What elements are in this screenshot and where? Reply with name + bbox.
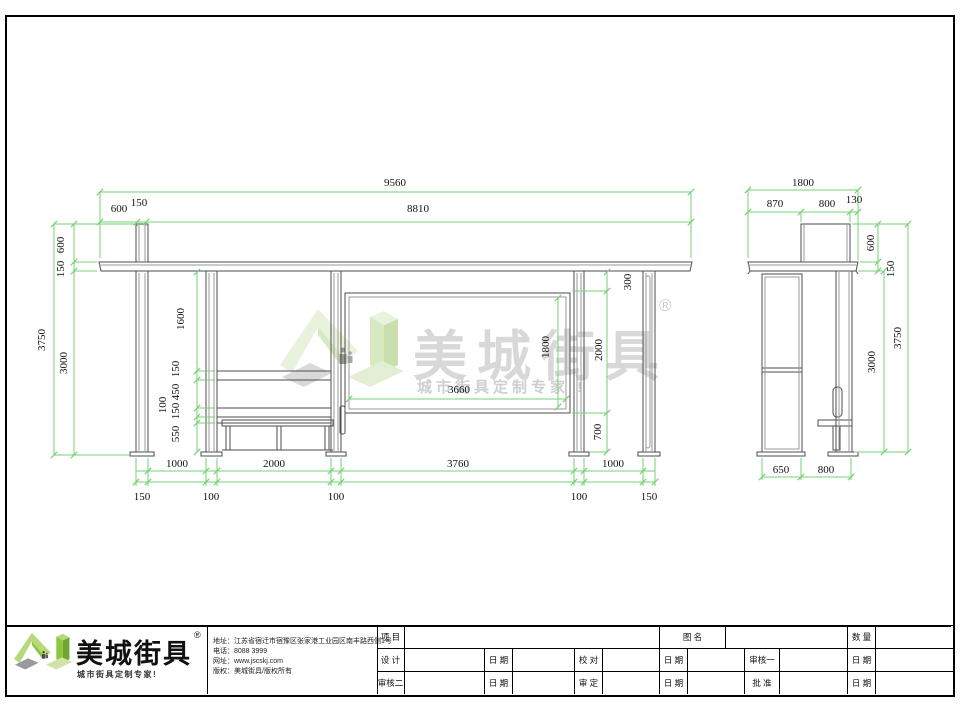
dim-label: 1800 [792,177,814,189]
titleblock-proof-label: 校 对 [575,649,603,671]
date-value [876,649,953,671]
dim-label: 600 [55,237,67,254]
company-copyright: 版权：美城街具/版权所有 [213,667,392,677]
company-info: 地址：江苏省宿迁市宿豫区张家港工业园区南丰路西侧1号 电话：8088 3999 … [213,637,392,677]
date-value [513,649,575,671]
dim-label: 1000 [602,458,624,470]
dim-label: 600 [865,235,877,252]
dim-label: 3750 [892,327,904,349]
dim-label: 150 [134,491,151,503]
titleblock-table: 项 目 图 名 数 量 设 计 日 期 校 对 日 期 审核一 日 期 审核二 … [377,625,953,694]
date-value [688,649,745,671]
date-value [876,672,953,694]
project-value [405,626,660,648]
table-row: 审核二 日 期 审 定 日 期 批 准 日 期 [377,672,953,694]
watermark-tagline: 城市街具定制专家 ! [417,376,586,397]
table-row: 设 计 日 期 校 对 日 期 审核一 日 期 [377,649,953,672]
company-address: 地址：江苏省宿迁市宿豫区张家港工业园区南丰路西侧1号 [213,637,392,647]
footer-logo-icon [14,633,72,670]
review1-value [780,649,848,671]
titleblock-review1-label: 审核一 [745,649,780,671]
dim-label: 150 [885,261,897,278]
watermark-logo-icon [280,309,404,387]
dim-label: 9560 [384,177,406,189]
review2-value [405,672,485,694]
dim-label: 600 [111,203,128,215]
titleblock-date-label: 日 期 [848,672,876,694]
dim-label: 450 [170,384,182,401]
titleblock-approve-label: 审 定 [575,672,603,694]
titleblock-date-label: 日 期 [660,672,688,694]
ratify-value [780,672,848,694]
dim-label: 100 [157,397,169,414]
titleblock-date-label: 日 期 [485,672,513,694]
drawing-name-value [726,626,848,648]
titleblock-date-label: 日 期 [660,649,688,671]
date-value [513,672,575,694]
dim-label: 3760 [447,458,469,470]
dim-label: 150 [131,197,148,209]
footer-brand-text: 美城街具 [76,632,192,671]
proof-value [603,649,660,671]
titleblock-review2-label: 审核二 [377,672,405,694]
dim-label: 300 [622,274,634,291]
dim-label: 3660 [448,384,470,396]
footer-tagline: 城市街具定制专家! [77,669,157,680]
company-phone: 电话：8088 3999 [213,647,392,657]
dim-label: 1600 [175,308,187,330]
dim-label: 8810 [407,203,429,215]
dim-label: 150 [170,403,182,420]
dim-label: 3000 [58,352,70,374]
titleblock-drawing-name-label: 图 名 [660,626,726,648]
quantity-value [876,626,953,648]
dim-label: 3750 [36,329,48,351]
titleblock-ratify-label: 批 准 [745,672,780,694]
dim-label: 2000 [263,458,285,470]
dim-label: 100 [203,491,220,503]
dim-label: 2000 [593,339,605,361]
dim-label: 800 [818,464,835,476]
dim-label: 100 [571,491,588,503]
footer-registered-icon: ® [194,630,201,640]
dim-label: 800 [819,198,836,210]
dim-label: 3000 [866,351,878,373]
dim-label: 1000 [166,458,188,470]
date-value [688,672,745,694]
titleblock-design-label: 设 计 [377,649,405,671]
table-row: 项 目 图 名 数 量 [377,626,953,649]
dim-label: 130 [846,194,863,206]
dim-label: 550 [170,426,182,443]
dim-label: 1800 [540,336,552,358]
dim-label: 100 [328,491,345,503]
titleblock-project-label: 项 目 [377,626,405,648]
titleblock-divider [207,625,208,694]
dim-label: 150 [641,491,658,503]
titleblock-date-label: 日 期 [485,649,513,671]
titleblock-date-label: 日 期 [848,649,876,671]
approve-value [603,672,660,694]
design-value [405,649,485,671]
dim-label: 150 [170,361,182,378]
dim-label: 650 [773,464,790,476]
watermark-registered-icon: ® [659,296,672,316]
dim-label: 150 [55,261,67,278]
dim-label: 700 [592,424,604,441]
dim-label: 870 [767,198,784,210]
titleblock-quantity-label: 数 量 [848,626,876,648]
company-website: 网址：www.jscskj.com [213,657,392,667]
drawing-sheet: 美城街具 ® 城市街具定制专家 ! [0,0,960,704]
